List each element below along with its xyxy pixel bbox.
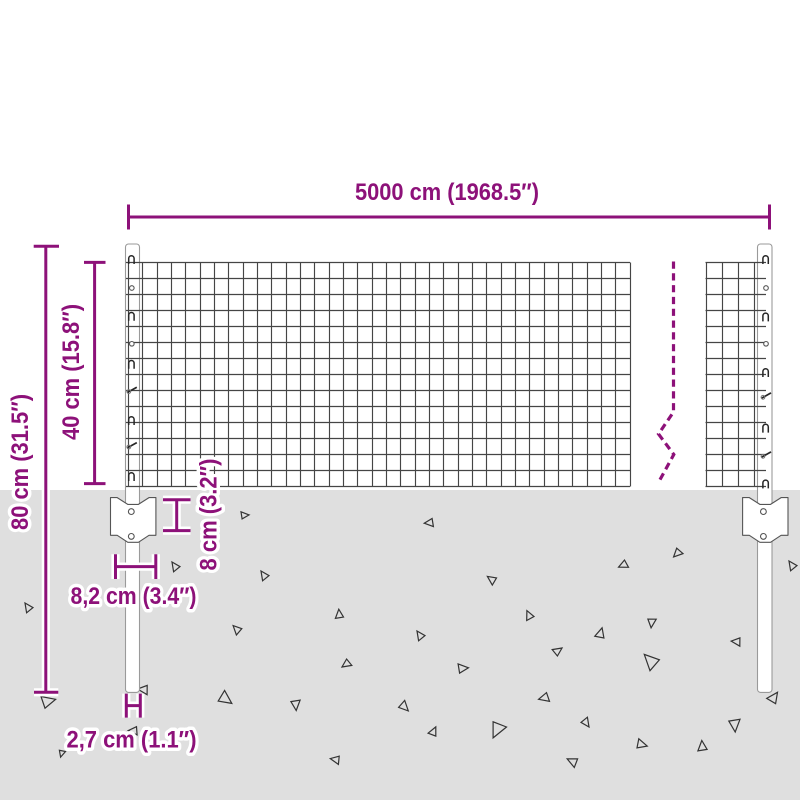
svg-text:8,2 cm (3.4″): 8,2 cm (3.4″) xyxy=(71,583,197,610)
svg-text:80 cm (31.5″): 80 cm (31.5″) xyxy=(7,394,34,530)
svg-text:5000 cm (1968.5″): 5000 cm (1968.5″) xyxy=(355,179,539,206)
svg-text:8 cm (3.2″): 8 cm (3.2″) xyxy=(196,459,223,571)
svg-text:2,7 cm (1.1″): 2,7 cm (1.1″) xyxy=(67,727,197,754)
svg-text:40 cm (15.8″): 40 cm (15.8″) xyxy=(58,304,85,440)
